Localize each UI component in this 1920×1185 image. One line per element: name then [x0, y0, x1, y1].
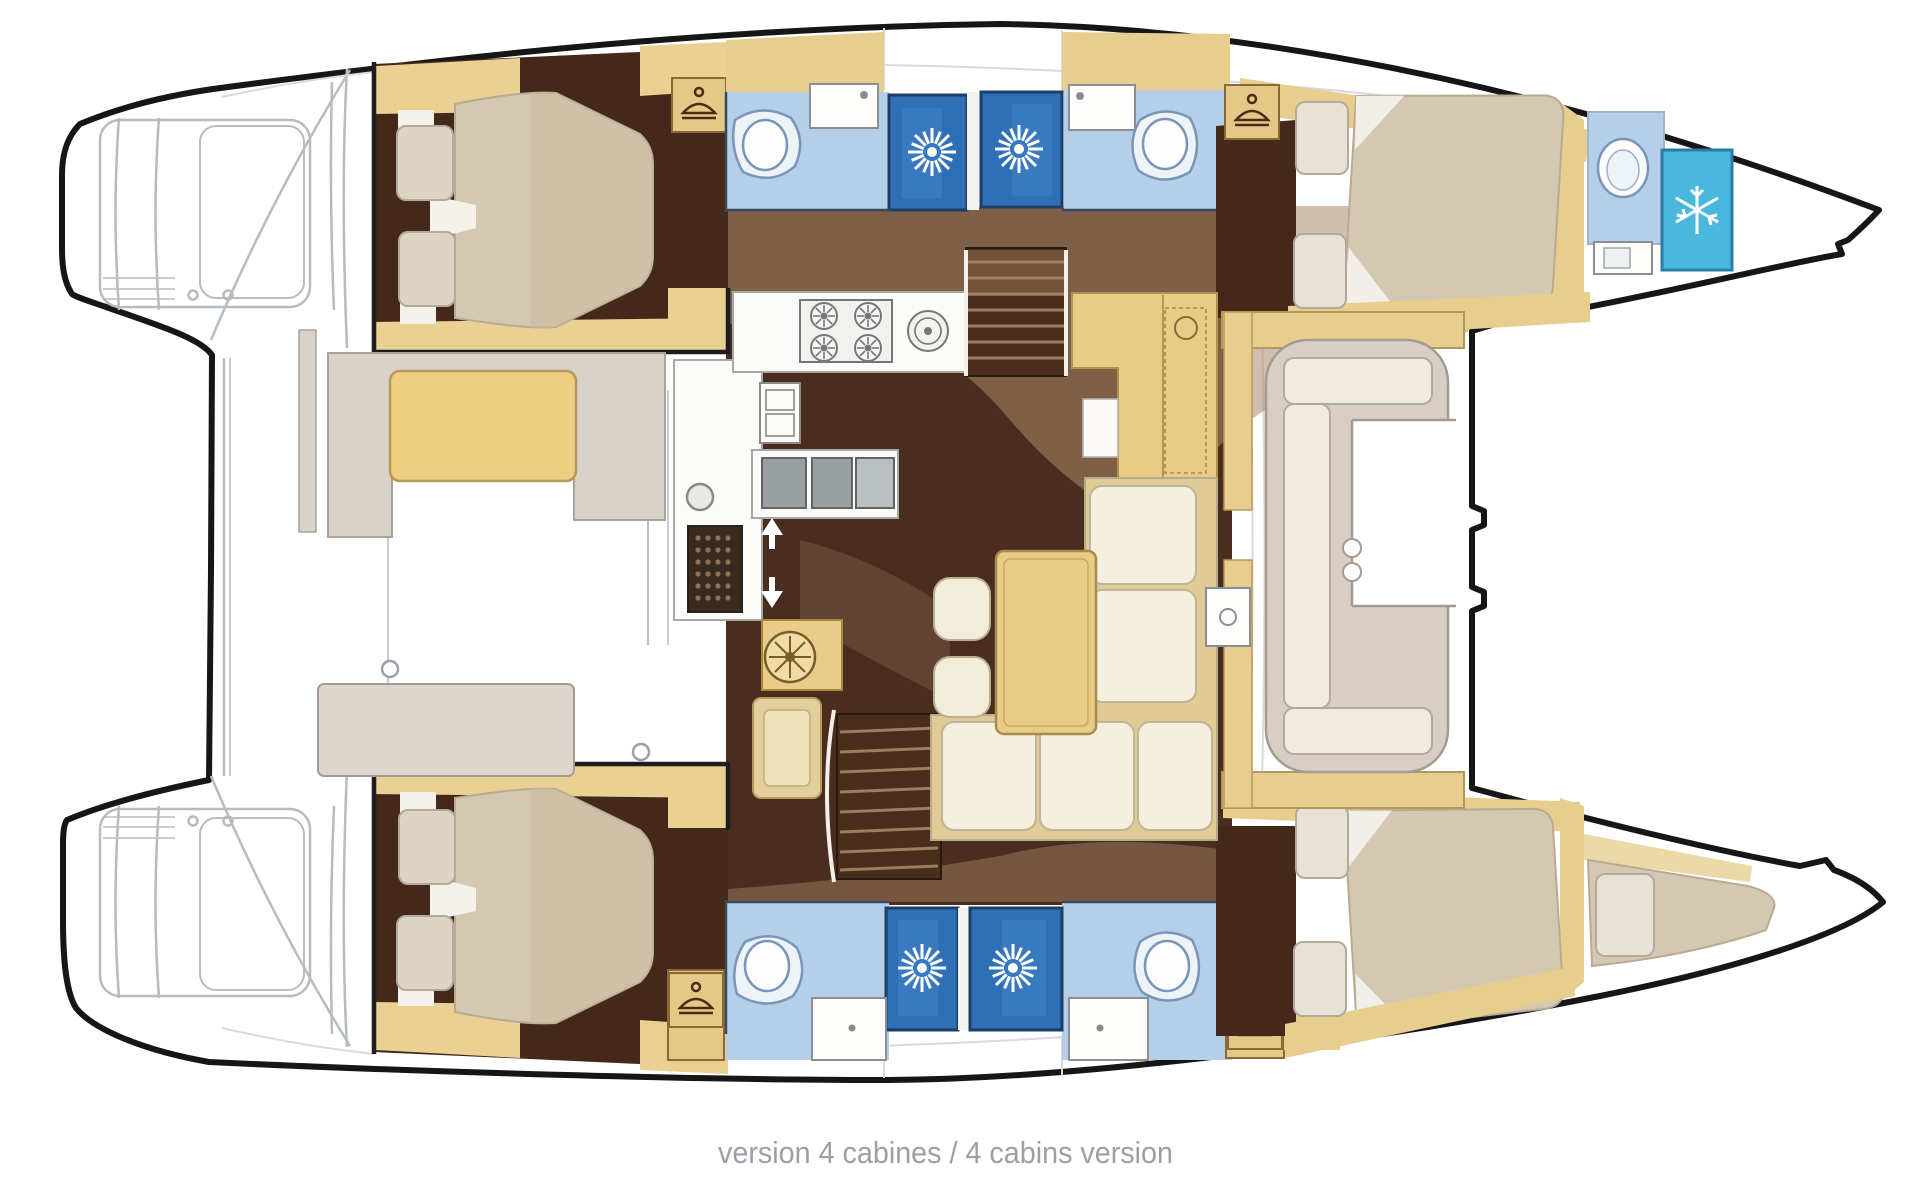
svg-text:version 4 cabines / 4 cabins v: version 4 cabines / 4 cabins version	[718, 1135, 1173, 1170]
